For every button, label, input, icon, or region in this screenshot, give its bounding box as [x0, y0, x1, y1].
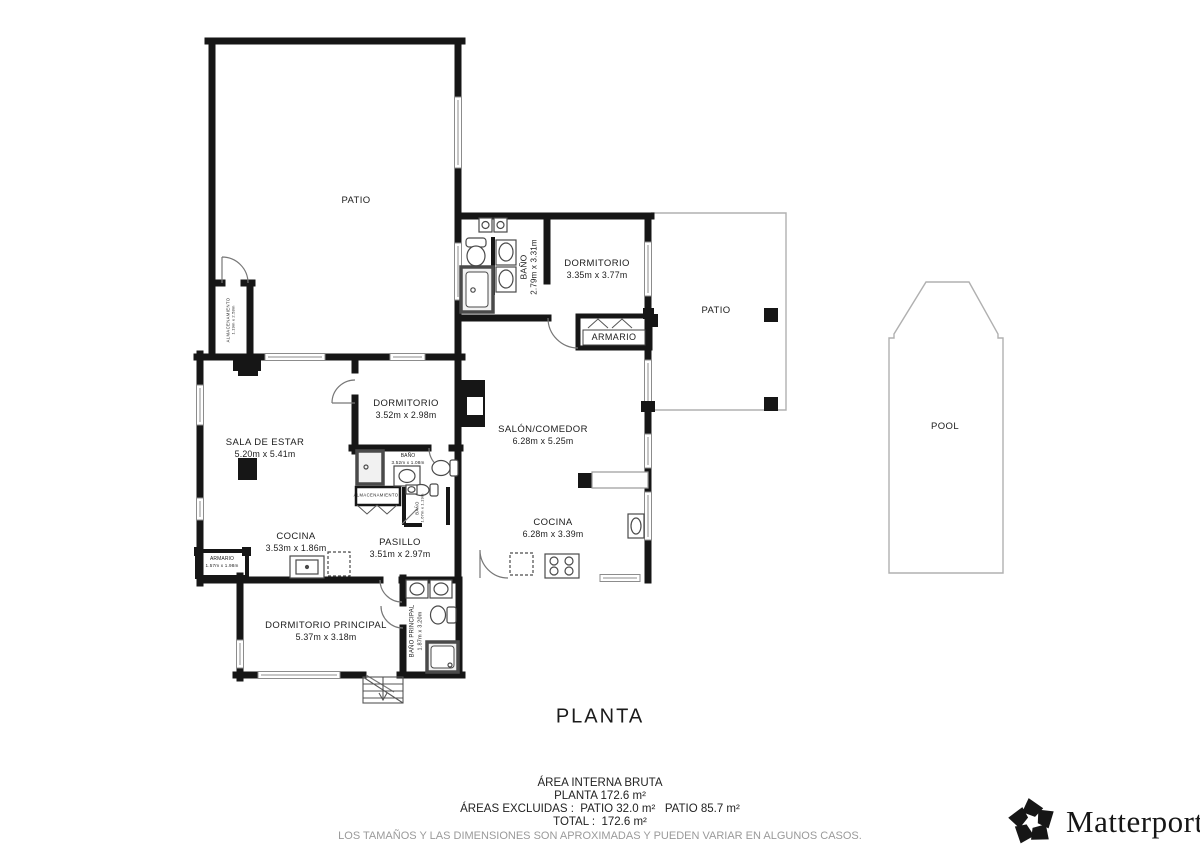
page-title: PLANTA [556, 706, 644, 729]
room-dims: 1.19m x 2.58m [231, 305, 236, 334]
room-dims: 3.52m x 2.98m [376, 410, 437, 421]
room-name: DORMITORIO PRINCIPAL [265, 620, 387, 632]
matterport-icon [1006, 796, 1058, 848]
room-dims: 3.52m x 1.08m [392, 459, 425, 465]
brand-wordmark: Matterport® [1066, 804, 1200, 840]
room-name: DORMITORIO [373, 398, 439, 410]
room-label-patio-right: PATIO [701, 305, 730, 317]
room-label-bano-principal: BAÑO PRINCIPAL 1.87m x 3.20m [410, 605, 425, 658]
room-label-bano-top: BAÑO 2.79m x 3.31m [518, 239, 539, 295]
room-name: SALÓN/COMEDOR [498, 424, 588, 436]
room-dims: 2.79m x 3.31m [529, 239, 539, 295]
brand-name: Matterport [1066, 804, 1200, 839]
room-name: PASILLO [379, 537, 421, 549]
room-dims: 3.35m x 3.77m [567, 270, 628, 281]
room-label-armario-top: ARMARIO [592, 332, 637, 344]
room-name: BAÑO PRINCIPAL [410, 605, 418, 658]
room-dims: 5.37m x 3.18m [296, 632, 357, 643]
room-name: ARMARIO [592, 332, 637, 344]
room-label-bano-small: BAÑO 1.67m x 1.19m [415, 493, 426, 522]
room-name: ALMACENAMIENTO [354, 492, 399, 497]
room-label-dormitorio-top: DORMITORIO 3.35m x 3.77m [564, 258, 630, 282]
fixtures [290, 218, 648, 672]
room-name: DORMITORIO [564, 258, 630, 270]
room-name: COCINA [276, 531, 315, 543]
room-label-sala-de-estar: SALA DE ESTAR 5.20m x 5.41m [226, 437, 304, 461]
room-label-armario-left: ARMARIO 1.57m x 1.98m [206, 556, 239, 568]
room-label-dormitorio-principal: DORMITORIO PRINCIPAL 5.37m x 3.18m [265, 620, 387, 644]
room-label-salon-comedor: SALÓN/COMEDOR 6.28m x 5.25m [498, 424, 588, 448]
stairs [363, 677, 403, 703]
room-label-cocina-right: COCINA 6.28m x 3.39m [523, 517, 584, 541]
area-line-gross: ÁREA INTERNA BRUTA [0, 777, 1200, 790]
room-name: BAÑO [518, 255, 529, 280]
room-name: PATIO [341, 195, 370, 207]
room-dims: 5.20m x 5.41m [235, 449, 296, 460]
room-label-dormitorio-mid: DORMITORIO 3.52m x 2.98m [373, 398, 439, 422]
room-name: SALA DE ESTAR [226, 437, 304, 449]
room-label-patio-top: PATIO [341, 195, 370, 207]
room-dims: 1.87m x 3.20m [417, 612, 424, 651]
room-label-almacenamiento-left: ALMACENAMIENTO 1.19m x 2.58m [226, 298, 237, 343]
brand-logo: Matterport® [1006, 796, 1200, 848]
room-dims: 1.57m x 1.98m [206, 562, 239, 568]
room-dims: 1.67m x 1.19m [420, 493, 425, 522]
room-name: POOL [931, 421, 959, 433]
room-dims: 6.28m x 5.25m [513, 436, 574, 447]
room-name: PATIO [701, 305, 730, 317]
room-label-pasillo: PASILLO 3.51m x 2.97m [370, 537, 431, 561]
room-dims: 3.53m x 1.86m [266, 543, 327, 554]
room-name: COCINA [533, 517, 572, 529]
room-label-cocina-left: COCINA 3.53m x 1.86m [266, 531, 327, 555]
room-dims: 3.51m x 2.97m [370, 549, 431, 560]
fireplace-notch [467, 397, 483, 415]
room-label-bano-mid: BAÑO 3.52m x 1.08m [392, 453, 425, 465]
floor-plan: PATIO BAÑO 2.79m x 3.31m DORMITORIO 3.35… [0, 0, 1200, 849]
room-label-pool: POOL [931, 421, 959, 433]
room-dims: 6.28m x 3.39m [523, 529, 584, 540]
room-label-almacenamiento-mid: ALMACENAMIENTO [354, 492, 399, 497]
